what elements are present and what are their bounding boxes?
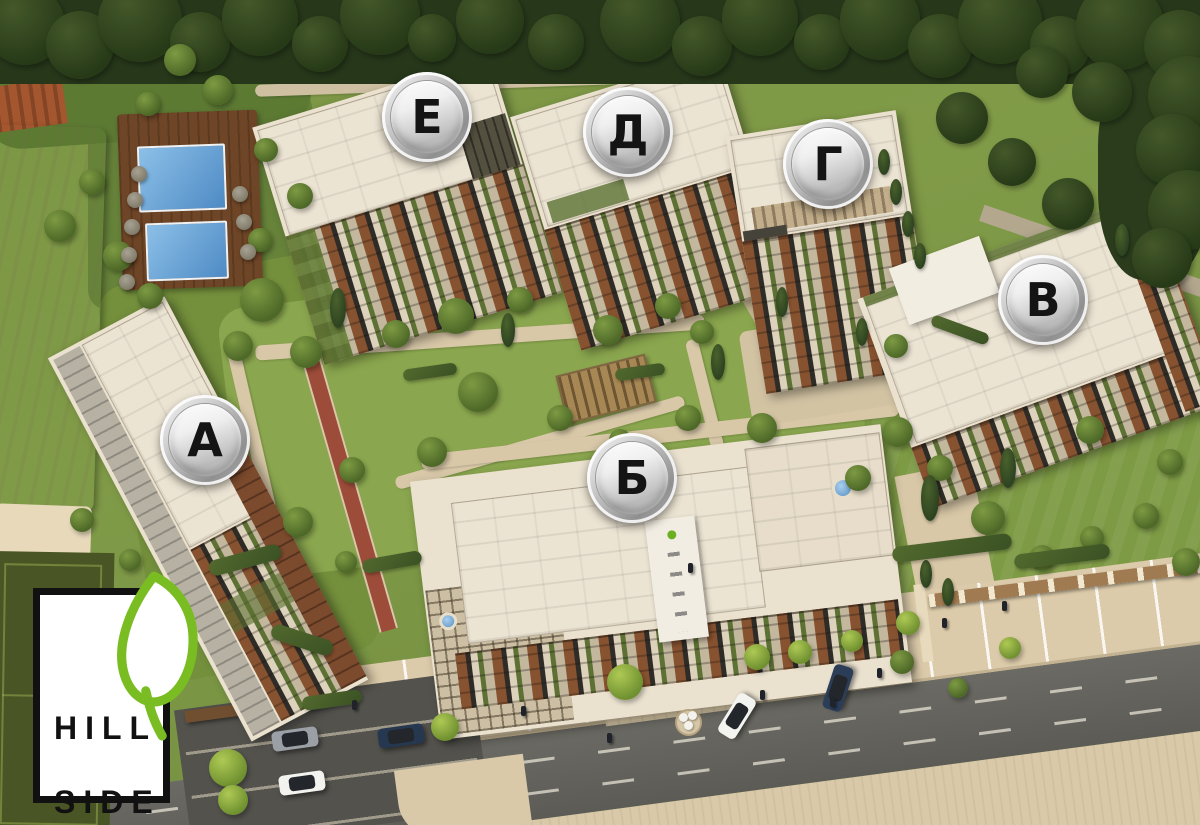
building-marker-a[interactable]: А	[160, 395, 250, 485]
planter-sphere	[688, 711, 697, 720]
building-marker-letter: Г	[792, 128, 864, 200]
swimming-pool	[145, 221, 229, 282]
tennis-dome-canopy	[0, 124, 107, 513]
swimming-pool	[137, 143, 227, 212]
forest-band-east	[1098, 58, 1200, 280]
site-plan-render: АБВГДЕ HILL SIDE	[0, 0, 1200, 825]
logo-line2: SIDE	[54, 784, 161, 821]
forest-band-north	[0, 0, 1200, 84]
round-planter	[675, 709, 702, 736]
planter-sphere	[684, 721, 693, 730]
building-marker-letter: Е	[391, 81, 463, 153]
building-marker-letter: В	[1007, 264, 1079, 336]
building-marker-g[interactable]: Г	[783, 119, 873, 209]
tower-logo-dot	[667, 530, 677, 540]
roof-east-wing	[744, 432, 894, 572]
hillside-logo: HILL SIDE	[33, 588, 170, 803]
building-marker-d[interactable]: Д	[583, 87, 673, 177]
building-marker-letter: Б	[596, 442, 668, 514]
building-marker-letter: Д	[592, 96, 664, 168]
building-marker-e[interactable]: Е	[382, 72, 472, 162]
building-marker-b[interactable]: Б	[587, 433, 677, 523]
logo-line1: HILL	[54, 710, 157, 747]
building-marker-letter: А	[169, 404, 241, 476]
building-marker-v[interactable]: В	[998, 255, 1088, 345]
tower-windows	[667, 548, 689, 633]
